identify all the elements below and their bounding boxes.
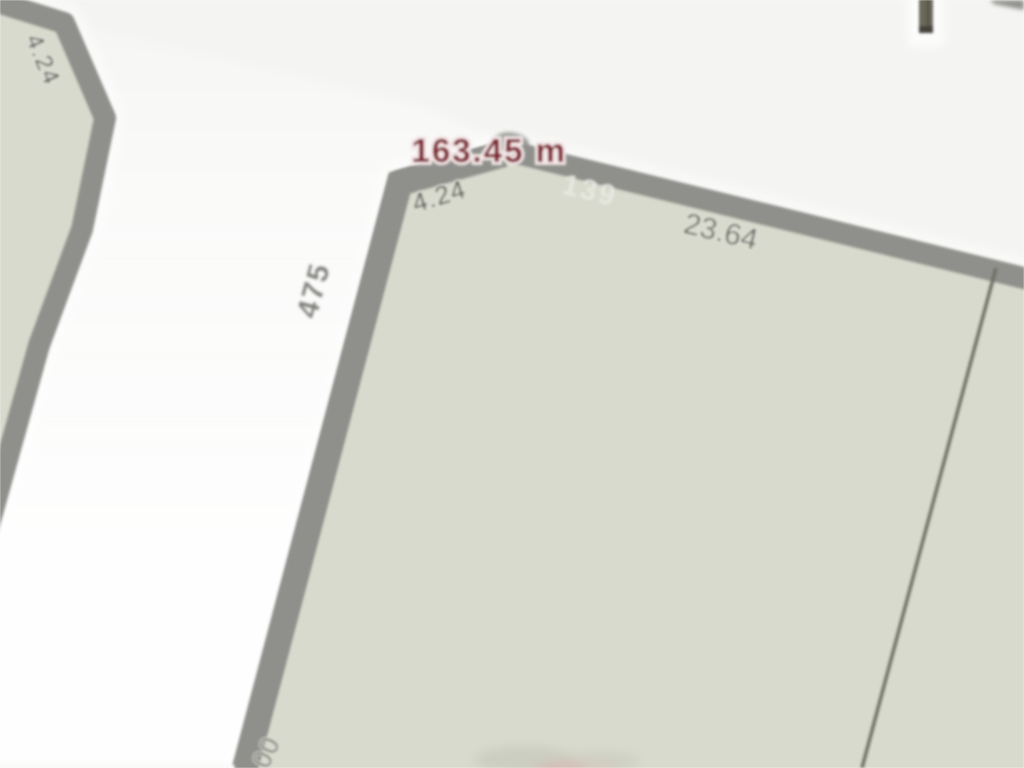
svg-text:163.45 m: 163.45 m	[412, 132, 567, 169]
